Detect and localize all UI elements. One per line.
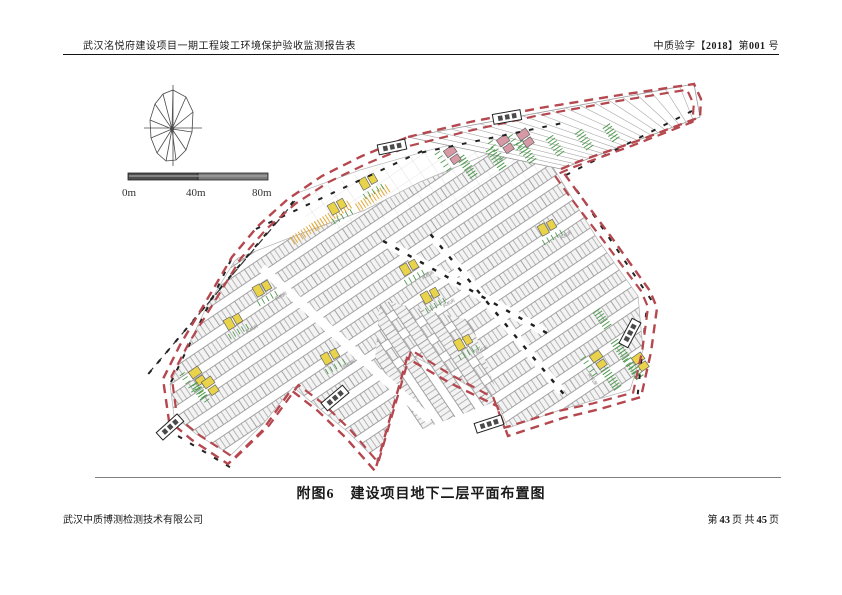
compass-radials	[150, 90, 193, 161]
page-indicator-prefix: 第	[708, 515, 718, 526]
footer-page-indicator: 第43页 共45页	[708, 511, 780, 526]
plan-drawing: 风机房风机房风机房风机房风机房风机房风机房风机房	[148, 84, 701, 471]
scale-label-40: 40m	[186, 187, 206, 199]
scale-label-80: 80m	[252, 187, 272, 199]
site-plan-figure: 0m 40m 80m 风机房风机房风机房风机房风机房风机房风机房风机房	[0, 0, 842, 595]
north-compass-icon	[144, 85, 202, 166]
compass-center	[170, 127, 173, 130]
footer-company-name: 武汉中质博测检测技术有限公司	[63, 511, 203, 526]
page-indicator-suffix: 页	[769, 515, 779, 526]
page-current: 43	[718, 515, 733, 526]
scale-label-0: 0m	[122, 187, 137, 199]
entrance-label-box	[377, 139, 406, 155]
scale-bar: 0m 40m 80m	[122, 173, 272, 199]
entrance-label-box	[474, 415, 504, 433]
figure-caption-label: 附图6	[297, 487, 335, 502]
report-page: 武汉洺悦府建设项目一期工程竣工环境保护验收监测报告表 中质验字【2018】第00…	[0, 0, 842, 595]
page-total: 45	[755, 515, 770, 526]
page-footer: 武汉中质博测检测技术有限公司 第43页 共45页	[63, 511, 779, 526]
page-indicator-mid: 页 共	[732, 515, 755, 526]
figure-caption-title: 建设项目地下二层平面布置图	[351, 487, 546, 502]
figure-bottom-rule	[95, 477, 781, 478]
figure-caption: 附图6建设项目地下二层平面布置图	[0, 483, 842, 503]
